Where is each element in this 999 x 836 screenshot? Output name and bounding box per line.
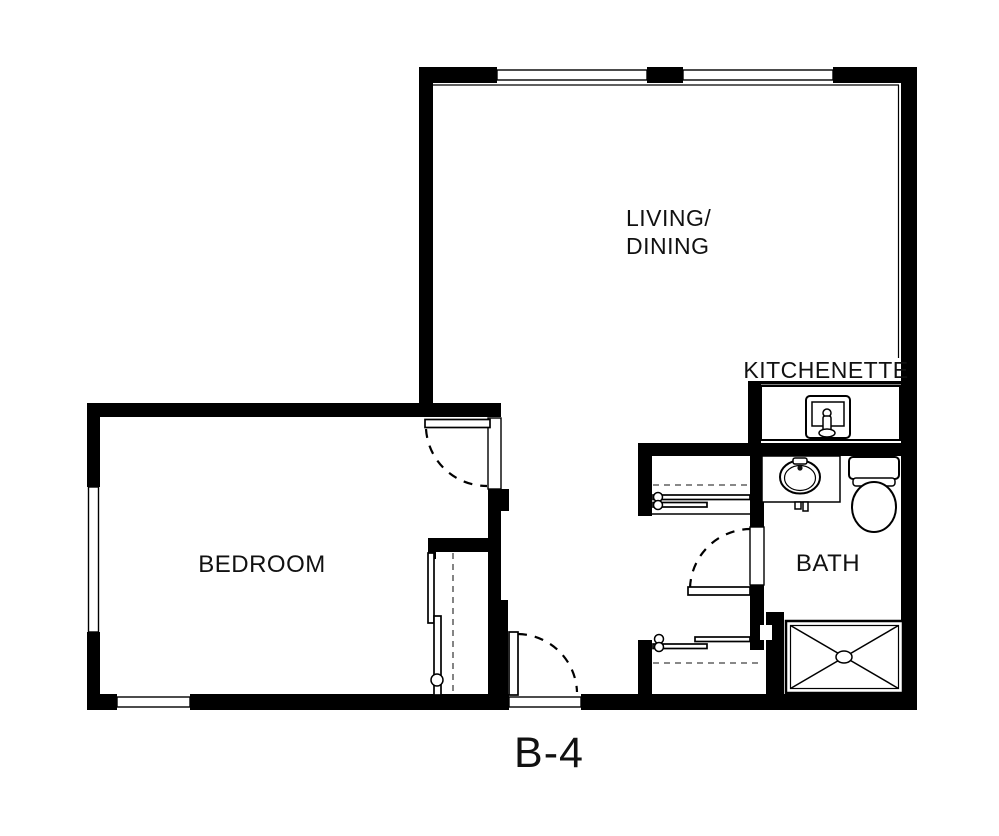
walls — [87, 67, 917, 710]
bedroom-closet-handle — [431, 674, 443, 686]
bedroom-door — [425, 418, 501, 489]
bedroom-east-wall-nib — [488, 489, 509, 511]
entry-door-jamb-wall — [488, 600, 508, 696]
shower-drain — [836, 651, 852, 663]
right-wall — [901, 67, 917, 710]
entry-closet-door-rear — [695, 637, 750, 642]
bath-door — [688, 527, 764, 595]
bath-door-leaf — [688, 587, 750, 595]
living-dining-label-line1: LIVING/ — [626, 205, 711, 231]
bedroom-closet-door-rear — [428, 553, 434, 623]
bedroom-closet — [428, 553, 453, 696]
unit-label: B-4 — [514, 729, 584, 777]
bedroom-top-wall — [87, 403, 501, 417]
bath-door-opening — [750, 527, 764, 585]
living-west-wall — [419, 67, 433, 417]
bedroom-closet-top-wall — [428, 538, 501, 552]
floor-plan: LIVING/ DINING KITCHENETTE BEDROOM BATH … — [0, 0, 999, 836]
toilet-tank — [849, 457, 899, 479]
left-window — [87, 487, 100, 632]
hall-closet — [652, 485, 750, 514]
doors — [425, 418, 764, 710]
wall-notch — [760, 625, 772, 640]
kitchen-sink-icon — [806, 396, 850, 438]
bath-door-swing-arc — [690, 529, 750, 588]
entry-closet — [653, 635, 758, 664]
entry-door-leaf — [509, 632, 518, 695]
floor-plan-svg: LIVING/ DINING KITCHENETTE BEDROOM BATH … — [0, 0, 999, 836]
hall-closet-handle-2 — [654, 501, 663, 510]
bath-sink-icon — [762, 456, 840, 511]
kitchenette-label: KITCHENETTE — [743, 357, 908, 383]
top-window-1 — [497, 67, 647, 83]
bedroom-door-opening — [488, 418, 501, 489]
living-dining-label-line2: DINING — [626, 233, 710, 259]
entry-closet-handle-2 — [655, 643, 664, 652]
windows — [87, 67, 833, 710]
hall-closet-door-rear — [653, 495, 750, 500]
bottom-wall — [87, 694, 917, 710]
toilet-icon — [849, 457, 899, 532]
bedroom-door-leaf — [425, 420, 490, 428]
toilet-bowl — [852, 482, 896, 532]
hall-bath-top-wall — [638, 443, 917, 456]
bath-west-wall-lower — [750, 585, 764, 650]
entry-door-swing-arc — [518, 634, 577, 692]
bedroom-label: BEDROOM — [198, 551, 326, 578]
top-window-2 — [683, 67, 833, 83]
bottom-window — [117, 694, 190, 710]
bath-label: BATH — [796, 550, 860, 577]
entry-door — [509, 632, 581, 710]
entry-door-threshold — [509, 697, 581, 707]
kitchenette-west-wall — [748, 383, 761, 456]
top-wall — [419, 67, 917, 83]
entry-closet-left-wall — [638, 640, 652, 710]
shower-icon — [786, 621, 903, 693]
kitchenette-area — [748, 381, 902, 440]
bedroom-door-swing-arc — [426, 429, 487, 486]
